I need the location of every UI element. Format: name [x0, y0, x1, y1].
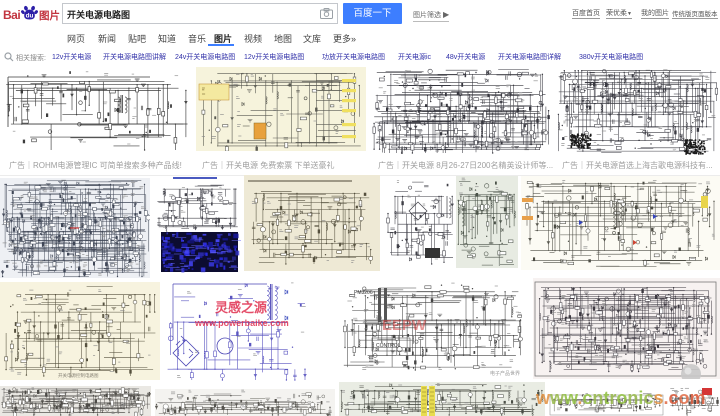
svg-text:开关电源控制电路图: 开关电源控制电路图	[58, 372, 99, 379]
svg-text:电子产品世界: 电子产品世界	[490, 370, 520, 377]
svg-text:EEPW: EEPW	[382, 317, 427, 334]
svg-text:CONTROL: CONTROL	[376, 343, 401, 349]
svg-text:灵感之源: 灵感之源	[215, 300, 267, 315]
svg-text:www.powerbaike.com: www.powerbaike.com	[194, 318, 289, 328]
svg-text:PM3206: PM3206	[354, 290, 373, 296]
